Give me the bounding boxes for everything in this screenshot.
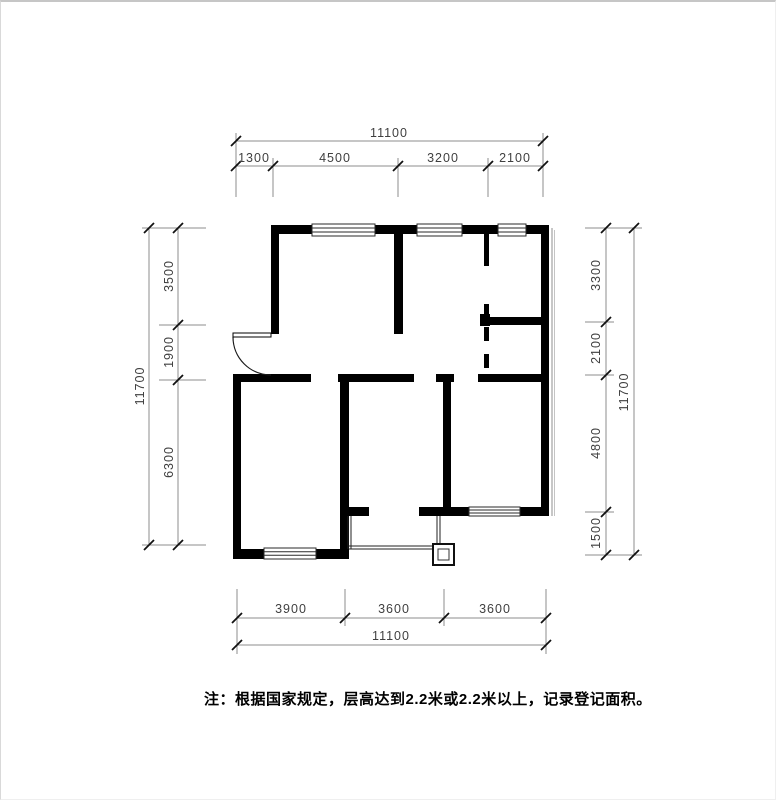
door-swing-arc	[233, 337, 271, 375]
wall-segment	[233, 549, 264, 559]
dim-label: 1300	[238, 151, 270, 165]
dimension-right: 3300 2100 4800 1500 11700	[585, 223, 642, 560]
wall-segment	[338, 374, 414, 382]
wall-segment	[520, 507, 549, 516]
dim-label: 4500	[319, 151, 351, 165]
dim-label: 3900	[275, 602, 307, 616]
dim-label: 4800	[589, 427, 603, 459]
dim-label: 2100	[589, 332, 603, 364]
entry-door	[233, 333, 271, 375]
dim-label: 3500	[162, 260, 176, 292]
dim-label: 11100	[372, 629, 410, 643]
floor-plan-page: 11100 1300 4500 3200 2100 3900 3600 3600…	[0, 0, 776, 800]
flue-box-inner	[438, 549, 449, 560]
dimension-left: 3500 1900 6300 11700	[133, 223, 206, 550]
window-bottom-right	[469, 507, 520, 516]
wall-segment	[233, 374, 311, 382]
dimension-bottom: 3900 3600 3600 11100	[232, 589, 551, 654]
wall-segment	[541, 225, 549, 516]
dim-label: 11100	[370, 126, 408, 140]
dim-label: 3300	[589, 259, 603, 291]
dim-label: 3600	[479, 602, 511, 616]
dim-label: 1900	[162, 336, 176, 368]
window-top-1	[312, 224, 375, 236]
wall-segment	[484, 317, 541, 325]
window-bottom-left	[264, 548, 316, 559]
wall-segment	[462, 225, 498, 234]
dashed-wall-segment	[484, 354, 489, 368]
dim-label: 3600	[378, 602, 410, 616]
wall-segment	[394, 225, 403, 334]
balcony	[348, 516, 454, 565]
wall-junction	[480, 314, 490, 326]
dim-label: 2100	[499, 151, 531, 165]
wall-segment	[484, 234, 489, 266]
dim-label: 3200	[427, 151, 459, 165]
wall-segment	[443, 378, 451, 516]
wall-segment	[271, 225, 279, 334]
dashed-wall-segment	[484, 327, 489, 341]
dimension-top: 11100 1300 4500 3200 2100	[231, 126, 548, 197]
wall-segment	[233, 374, 241, 559]
wall-segment	[478, 374, 549, 382]
dim-label: 6300	[162, 446, 176, 478]
dim-label: 11700	[617, 373, 631, 412]
floor-plan-drawing: 11100 1300 4500 3200 2100 3900 3600 3600…	[1, 2, 776, 802]
dim-label: 1500	[589, 517, 603, 549]
dim-label: 11700	[133, 367, 147, 406]
window-top-2	[417, 224, 462, 236]
regulation-note: 注：根据国家规定，层高达到2.2米或2.2米以上，记录登记面积。	[204, 690, 652, 708]
window-top-3	[498, 224, 526, 236]
door-leaf	[233, 333, 271, 337]
